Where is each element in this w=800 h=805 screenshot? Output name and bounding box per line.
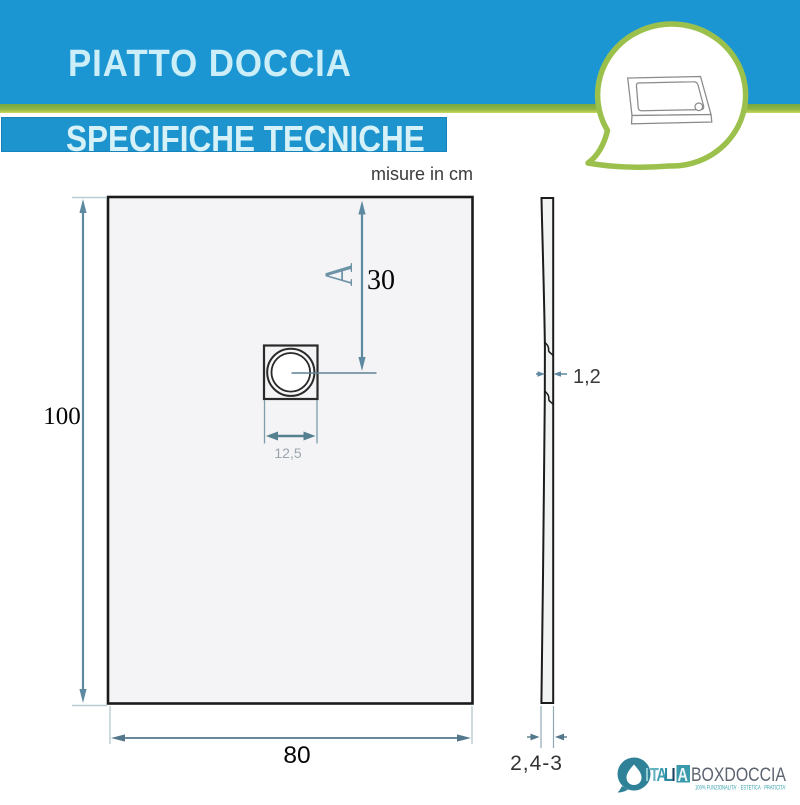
svg-text:BOXDOCCIA: BOXDOCCIA	[691, 763, 786, 785]
svg-text:100% FUNZIONALITA' · ESTETICA: 100% FUNZIONALITA' · ESTETICA · PRATICIT…	[695, 785, 786, 792]
svg-text:A: A	[316, 262, 361, 286]
svg-text:100: 100	[43, 403, 81, 430]
svg-text:12,5: 12,5	[274, 445, 301, 461]
svg-text:I: I	[645, 764, 649, 785]
svg-text:1,2: 1,2	[573, 366, 601, 388]
svg-text:A: A	[678, 764, 688, 785]
svg-text:80: 80	[283, 742, 310, 769]
svg-text:2,4-3: 2,4-3	[510, 752, 563, 775]
svg-text:I: I	[672, 764, 676, 785]
svg-text:30: 30	[367, 265, 395, 296]
